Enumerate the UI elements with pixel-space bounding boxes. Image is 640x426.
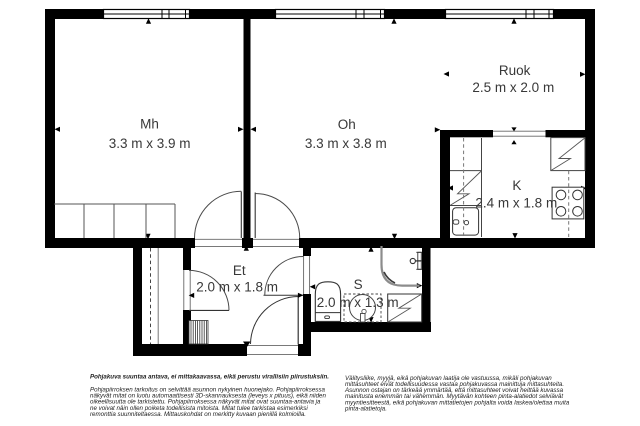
svg-text:Et: Et <box>233 263 246 278</box>
svg-text:Oh: Oh <box>338 117 356 132</box>
svg-text:K: K <box>512 178 521 193</box>
svg-text:S: S <box>354 277 363 292</box>
svg-text:2.5 m x 2.0 m: 2.5 m x 2.0 m <box>472 80 554 95</box>
svg-text:2.0 m x 1.3 m: 2.0 m x 1.3 m <box>317 295 399 310</box>
svg-text:2.0 m x 1.8 m: 2.0 m x 1.8 m <box>196 280 278 295</box>
svg-text:remonttia suunniteltaessa. Mit: remonttia suunniteltaessa. Mittauskohdat… <box>90 411 306 418</box>
svg-text:2.4 m x 1.8 m: 2.4 m x 1.8 m <box>475 196 557 211</box>
svg-text:3.3 m x 3.9 m: 3.3 m x 3.9 m <box>109 136 191 151</box>
svg-text:Pohjakuva suuntaa antava, ei m: Pohjakuva suuntaa antava, ei mittakaavas… <box>90 374 329 381</box>
svg-text:3.3 m x 3.8 m: 3.3 m x 3.8 m <box>305 136 387 151</box>
svg-text:pinta-alatietoja.: pinta-alatietoja. <box>344 405 387 412</box>
svg-text:Ruok: Ruok <box>499 63 531 78</box>
svg-text:Mh: Mh <box>140 117 159 132</box>
